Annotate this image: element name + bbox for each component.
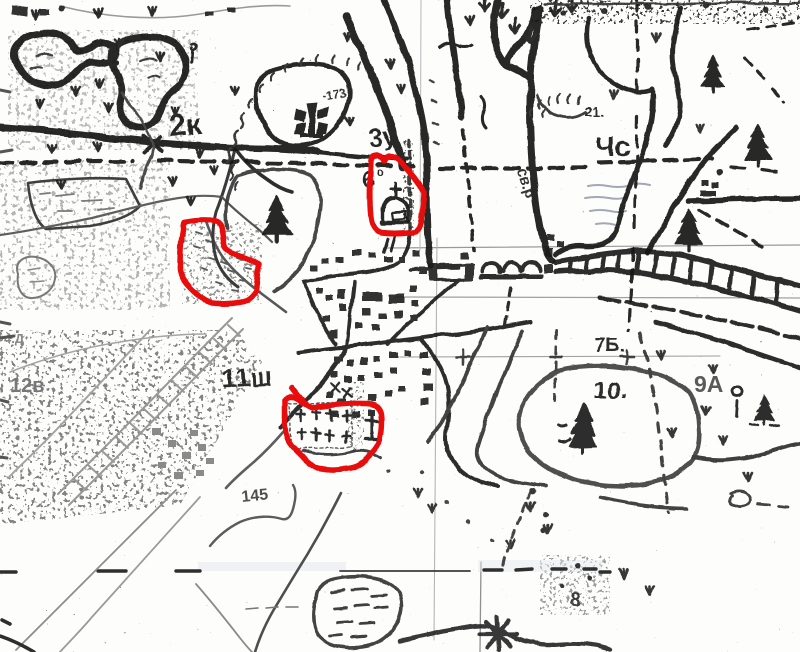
svg-text:145: 145 bbox=[241, 486, 269, 506]
svg-text:9А: 9А bbox=[694, 371, 723, 397]
svg-text:4.Д: 4.Д bbox=[4, 331, 25, 346]
svg-text:7Б.: 7Б. bbox=[594, 335, 625, 357]
svg-text:8: 8 bbox=[570, 590, 581, 611]
svg-text:11ш: 11ш bbox=[221, 361, 274, 394]
svg-text:21.: 21. bbox=[585, 103, 604, 119]
svg-text:12в: 12в bbox=[10, 375, 45, 397]
svg-text:o: o bbox=[377, 167, 384, 179]
svg-text:Чс: Чс bbox=[596, 132, 630, 162]
svg-text:10.: 10. bbox=[593, 377, 626, 404]
